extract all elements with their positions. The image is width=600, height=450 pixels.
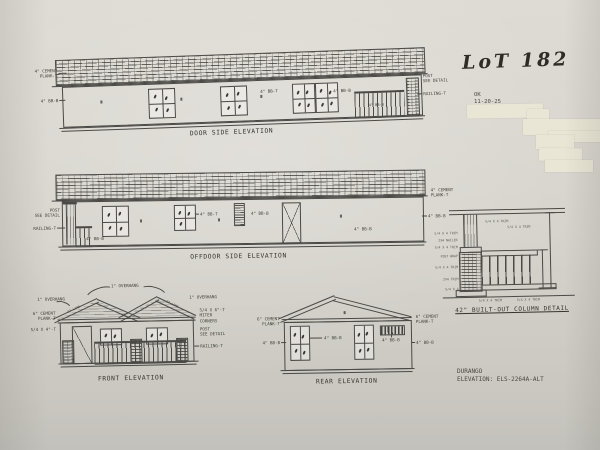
- label-bb: 4" BB-T: [260, 88, 278, 94]
- detail-callout: 5/4 X 4 TRIM: [479, 299, 502, 303]
- porch-pier: [62, 340, 74, 364]
- wall-mark: [180, 98, 182, 101]
- rail-balusters: [481, 254, 537, 284]
- leader-line: [391, 334, 392, 337]
- detail-callout: 5/4 X 4 TRIM: [428, 266, 458, 270]
- wall-mark: [100, 100, 102, 103]
- label-overhang: 1" OVERHANG: [189, 294, 217, 300]
- dimension-tick: [545, 212, 555, 213]
- caption-rear-elevation: REAR ELEVATION: [277, 377, 417, 386]
- label-bb: 4" BB-B: [416, 340, 434, 346]
- label-bb: 4" BB-T: [200, 211, 218, 216]
- window: [174, 205, 196, 231]
- window: [220, 85, 248, 116]
- detail-callout: 2X4 NAILER: [428, 239, 458, 243]
- dimension-line: [542, 249, 544, 288]
- wall-mark: [218, 218, 220, 221]
- window: [290, 326, 311, 361]
- window: [102, 206, 129, 237]
- wall-mark: [260, 95, 262, 98]
- dimension-tick: [538, 249, 548, 250]
- rear-elevation-drawing: 6" CEMENT PLANK-T 4" BB-B 4" BB-B 4" BB-…: [243, 281, 457, 390]
- front-door: [72, 326, 93, 364]
- label-trim: 5/4 X 4"-T: [26, 327, 56, 333]
- wall-mark: [340, 215, 342, 218]
- label-railing: RAILING-T: [423, 90, 446, 96]
- gable-mark: [344, 311, 346, 314]
- label-railing: RAILING-T: [20, 226, 56, 232]
- label-miter-corners: 5/4 X 6"-T MITER CORNERS: [199, 307, 225, 323]
- window: [292, 83, 316, 114]
- handwritten-lot-number: LoT 182: [462, 48, 570, 74]
- tape-strip: [527, 109, 549, 119]
- leader-line: [310, 337, 322, 338]
- narrow-window: [234, 203, 245, 226]
- door-side-elevation-drawing: 4" CEMENT PLANK-T 4" BB-B 4" BB-T 4" BB-…: [18, 27, 442, 150]
- leader-line: [57, 227, 65, 228]
- vent: [380, 325, 405, 335]
- porch-pier: [130, 339, 143, 363]
- label-overhang: 1" OVERHANG: [111, 283, 139, 289]
- caption-offdoor-side-elevation: OFFDOOR SIDE ELEVATION: [138, 252, 338, 262]
- beam-line: [449, 208, 565, 211]
- titleblock-model: DURANGO: [457, 368, 482, 376]
- label-bb: 4" BB-B: [369, 103, 384, 108]
- caption-front-elevation: FRONT ELEVATION: [61, 374, 201, 384]
- label-railing: RAILING-T: [200, 343, 223, 349]
- label-bb: 4" BB-B: [382, 337, 400, 343]
- window: [315, 82, 339, 113]
- label-post-see-detail: POST SEE DETAIL: [24, 208, 60, 219]
- dimension-line: [549, 212, 552, 288]
- detail-callout: POST WRAP: [428, 255, 458, 259]
- wall-mark: [140, 219, 142, 222]
- detail-callout: 5/4 X 4 TRIM: [485, 220, 508, 224]
- window: [354, 325, 375, 360]
- detail-callout: 5/4 X 4 TRIM: [517, 298, 540, 302]
- column-detail-drawing: 5/4 X 4 TRIM 2X4 NAILER 5/4 X 4 TRIM POS…: [427, 194, 598, 325]
- door: [282, 202, 302, 243]
- window: [148, 88, 176, 119]
- offdoor-side-elevation-drawing: POST SEE DETAIL RAILING-T 4" BB-B 4" BB-…: [17, 163, 470, 275]
- label-bb: 4" BB-B: [333, 88, 351, 94]
- detail-callout: 5/4 X 4 TRIM: [427, 232, 457, 236]
- detail-callout: 5/4 X 4 TRIM: [428, 246, 458, 250]
- detail-callout: 5/4 X 4 TRIM: [507, 226, 530, 230]
- porch-pier: [176, 338, 188, 362]
- label-bb: 4" BB-B: [251, 211, 269, 216]
- photographed-elevation-sheet: 4" CEMENT PLANK-T 4" BB-B 4" BB-T 4" BB-…: [0, 0, 600, 450]
- caption-column-detail: 42" BUILT-OUT COLUMN DETAIL: [437, 304, 587, 314]
- leader-line: [194, 346, 199, 347]
- label-cement-plank: 4" CEMENT PLANK-T: [21, 68, 57, 80]
- label-bb: 4" BB-B: [30, 98, 58, 104]
- detail-callout: 5/4 X 4: [431, 288, 459, 292]
- column-upper-post: [463, 215, 478, 247]
- label-bb: 4" BB-B: [86, 236, 104, 241]
- leader-line: [281, 342, 286, 343]
- leader-line: [59, 100, 65, 101]
- label-cement-plank: 6" CEMENT PLANK-T: [23, 311, 55, 322]
- leader-line: [417, 93, 422, 94]
- porch-post-pier: [406, 77, 420, 115]
- ground-line: [61, 364, 197, 368]
- titleblock-elevation-code: ELEVATION: ELS-2264A-ALT: [457, 376, 544, 384]
- label-bb: 4" BB-B: [324, 335, 342, 341]
- detail-callout: 2X4 TRIM: [428, 278, 458, 282]
- front-elevation-drawing: 1" OVERHANG 1" OVERHANG 6" CEMENT PLANK-…: [23, 281, 237, 391]
- label-cement-plank: 6" CEMENT PLANK-T: [244, 316, 280, 327]
- ground-line: [283, 371, 413, 374]
- label-bb: 4" BB-B: [354, 226, 372, 231]
- leader-line: [195, 214, 199, 215]
- label-post-see-detail: POST SEE DETAIL: [423, 72, 449, 83]
- column-built-out-base: [459, 252, 483, 292]
- label-bb: 4" BB-B: [254, 340, 280, 346]
- tape-strip: [545, 160, 593, 172]
- leader-line: [411, 342, 415, 343]
- label-post-see-detail: POST SEE DETAIL: [200, 326, 225, 337]
